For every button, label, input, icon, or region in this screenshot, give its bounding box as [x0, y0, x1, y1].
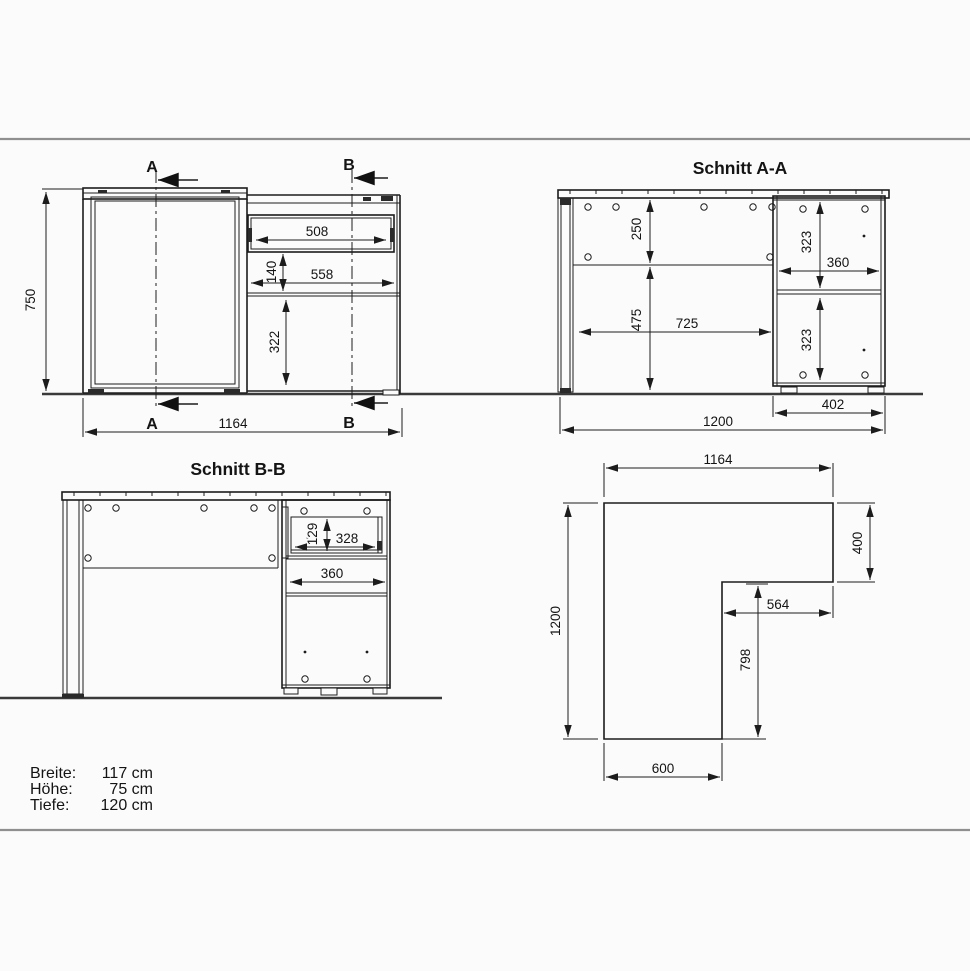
section-a-label-top: A: [146, 159, 158, 176]
pedestal-section-bb: [282, 500, 390, 695]
dim-328: 328: [336, 531, 359, 546]
top-view: 1164 1200 400 564 798 600: [548, 452, 875, 781]
section-aa-view: Schnitt A-A 250: [558, 158, 889, 434]
section-b-label-bottom: B: [343, 415, 355, 432]
spec-label-hoehe: Höhe:: [30, 781, 73, 798]
spec-value-hoehe: 75 cm: [109, 781, 153, 798]
dim-400: 400: [850, 532, 865, 555]
technical-drawing-sheet: A A B B 750 508 140 558 322 1164 Schnitt…: [0, 0, 970, 971]
dim-250: 250: [629, 218, 644, 241]
cabinet-door: [91, 197, 239, 388]
dim-322: 322: [267, 331, 282, 354]
dim-558: 558: [311, 267, 334, 282]
front-foot-right: [224, 389, 240, 394]
leg-section-bb: [62, 500, 84, 698]
section-bb-title: Schnitt B-B: [190, 459, 285, 479]
section-a-label-bottom: A: [146, 416, 158, 433]
dim-725: 725: [676, 316, 699, 331]
section-aa-title: Schnitt A-A: [693, 158, 788, 178]
dim-564: 564: [767, 597, 790, 612]
pedestal-section-aa: [773, 196, 885, 393]
dim-360-aa: 360: [827, 255, 850, 270]
dim-1200-aa: 1200: [703, 414, 733, 429]
spec-value-breite: 117 cm: [102, 765, 153, 782]
spec-table: Breite: 117 cm Höhe: 75 cm Tiefe: 120 cm: [30, 765, 153, 814]
dim-600: 600: [652, 761, 675, 776]
dim-1164-front: 1164: [218, 416, 248, 431]
dim-323-upper: 323: [799, 231, 814, 254]
drawer-front-section: [282, 507, 288, 558]
dim-360-bb: 360: [321, 566, 344, 581]
dim-508: 508: [306, 224, 329, 239]
dim-798: 798: [738, 649, 753, 672]
screw-holes-back-panel-aa: [585, 204, 775, 260]
leg-section-aa: [558, 198, 573, 393]
dim-1200-top: 1200: [548, 606, 563, 636]
dim-750: 750: [23, 289, 38, 312]
dim-140: 140: [264, 261, 279, 284]
spec-value-tiefe: 120 cm: [101, 797, 153, 814]
right-section-foot: [383, 390, 399, 395]
desk-outline-top-view: [604, 503, 833, 739]
dim-402: 402: [822, 397, 845, 412]
dim-323-lower: 323: [799, 329, 814, 352]
front-foot-left: [88, 389, 104, 394]
dim-475: 475: [629, 309, 644, 332]
desk-top-section-bb: [62, 492, 390, 500]
section-bb-view: Schnitt B-B: [62, 459, 390, 698]
spec-label-breite: Breite:: [30, 765, 76, 782]
section-b-label-top: B: [343, 157, 355, 174]
dim-129: 129: [305, 523, 320, 546]
dim-1164-top: 1164: [703, 452, 733, 467]
drawing-canvas: A A B B 750 508 140 558 322 1164 Schnitt…: [0, 0, 970, 971]
spec-label-tiefe: Tiefe:: [30, 797, 69, 814]
screw-holes-back-panel-bb: [85, 505, 275, 561]
